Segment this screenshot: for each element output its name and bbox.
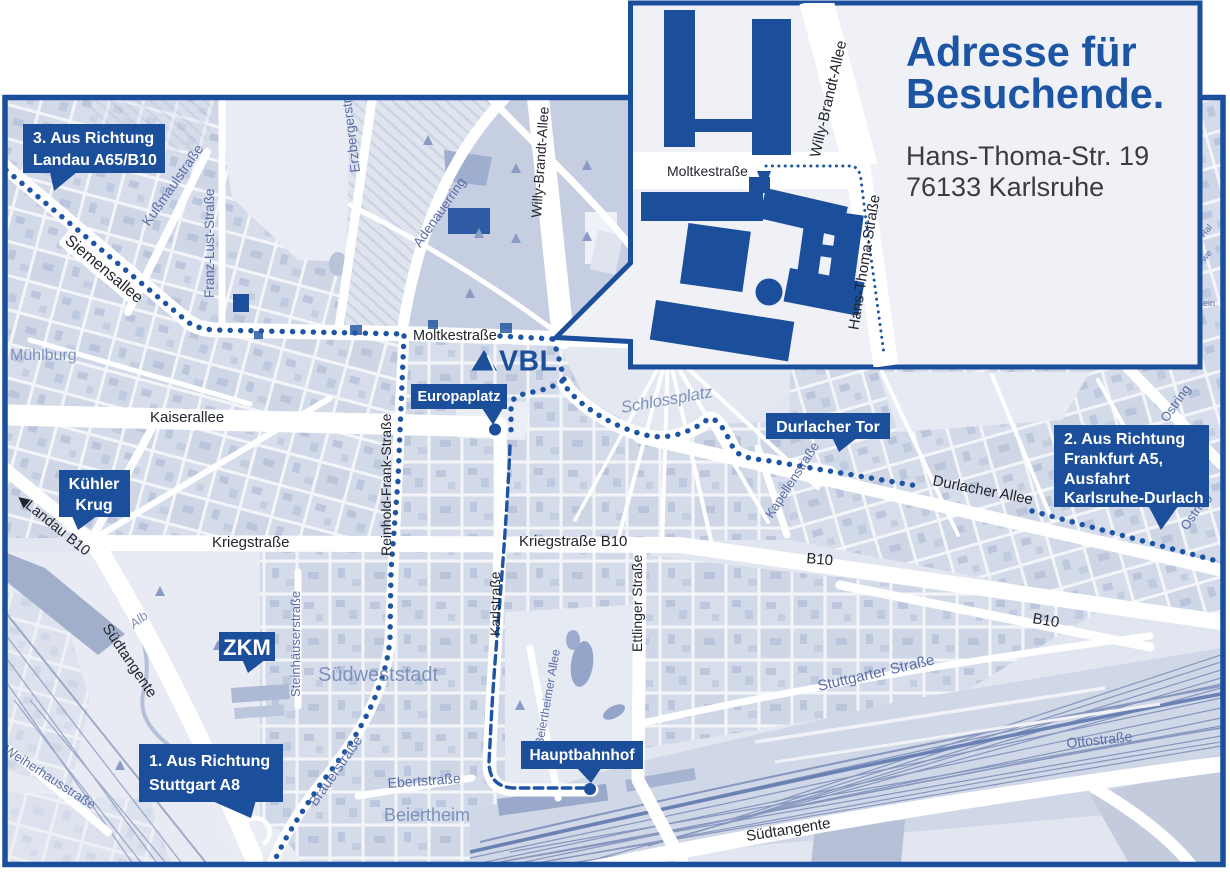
- svg-text:Kühler: Kühler: [69, 476, 120, 493]
- svg-text:Beiertheim: Beiertheim: [384, 805, 470, 825]
- svg-text:B10: B10: [806, 550, 834, 569]
- svg-text:ein: ein: [1203, 298, 1215, 308]
- svg-text:Kriegstraße: Kriegstraße: [212, 534, 290, 551]
- svg-text:Krug: Krug: [75, 497, 112, 514]
- svg-text:Südweststadt: Südweststadt: [318, 664, 439, 686]
- svg-text:Europaplatz: Europaplatz: [418, 389, 501, 405]
- svg-text:Mühlburg: Mühlburg: [10, 347, 77, 364]
- svg-text:Besuchende.: Besuchende.: [906, 70, 1164, 117]
- svg-text:Ettlinger Straße: Ettlinger Straße: [629, 555, 645, 652]
- svg-text:ZKM: ZKM: [223, 635, 271, 660]
- svg-text:Hans-Thoma-Str. 19: Hans-Thoma-Str. 19: [906, 141, 1149, 171]
- svg-text:Durlacher Tor: Durlacher Tor: [776, 419, 880, 436]
- svg-text:Stuttgart A8: Stuttgart A8: [149, 777, 240, 794]
- svg-text:76133 Karlsruhe: 76133 Karlsruhe: [906, 172, 1104, 202]
- svg-text:Adresse für: Adresse für: [906, 28, 1137, 75]
- svg-text:Moltkestraße: Moltkestraße: [413, 328, 497, 344]
- svg-text:Moltkestraße: Moltkestraße: [667, 163, 748, 179]
- svg-text:Karlsruhe-Durlach: Karlsruhe-Durlach: [1064, 490, 1204, 507]
- svg-text:Kriegstraße B10: Kriegstraße B10: [519, 533, 627, 550]
- svg-text:Hauptbahnhof: Hauptbahnhof: [529, 747, 635, 764]
- svg-text:VBL: VBL: [499, 346, 558, 378]
- svg-text:Reinhold-Frank-Straße: Reinhold-Frank-Straße: [378, 413, 394, 556]
- svg-text:Frankfurt A5,: Frankfurt A5,: [1064, 451, 1163, 468]
- svg-text:Ausfahrt: Ausfahrt: [1064, 471, 1130, 488]
- svg-text:Karlstraße: Karlstraße: [487, 571, 503, 636]
- svg-text:Franz-Lust-Straße: Franz-Lust-Straße: [202, 188, 217, 298]
- svg-text:Kaiserallee: Kaiserallee: [150, 409, 224, 426]
- svg-text:1. Aus Richtung: 1. Aus Richtung: [149, 753, 270, 770]
- svg-text:3. Aus Richtung: 3. Aus Richtung: [33, 130, 154, 147]
- svg-text:Landau A65/B10: Landau A65/B10: [33, 152, 157, 169]
- svg-text:Steinhäuserstraße: Steinhäuserstraße: [288, 591, 303, 697]
- svg-text:2. Aus Richtung: 2. Aus Richtung: [1064, 431, 1185, 448]
